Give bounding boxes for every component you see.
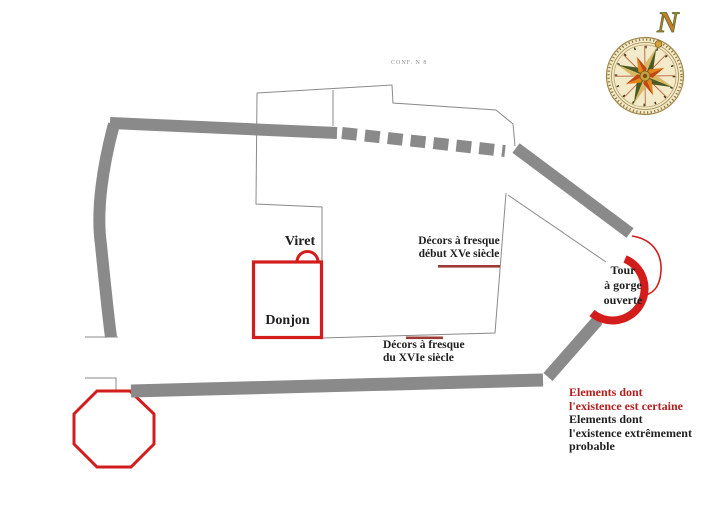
legend-probable-line1: Elements dont xyxy=(569,413,692,427)
fresco-xv-line1: Décors à fresque xyxy=(407,235,511,248)
plan-reference-note: CONF. N 8 xyxy=(391,60,427,66)
compass-north-knob xyxy=(655,41,662,48)
curtain-wall-dashed xyxy=(342,133,505,151)
curtain-wall-top xyxy=(110,123,337,133)
viret-label: Viret xyxy=(271,234,329,250)
open-gorge-tower-label: Tour à gorge ouverte xyxy=(594,263,652,308)
fresco-xvi-line2: du XVIe siècle xyxy=(383,352,483,365)
tower-label-line1: Tour xyxy=(594,263,652,278)
fresco-xv-line2: début XVe siècle xyxy=(407,248,511,261)
octagonal-tower xyxy=(74,391,154,467)
legend-certain-line1: Elements dont xyxy=(569,386,692,400)
curtain-wall-left xyxy=(99,124,114,337)
curtain-wall-south xyxy=(131,380,543,391)
fresco-xvi-label: Décors à fresque du XVIe siècle xyxy=(383,339,483,365)
compass-rose: N xyxy=(606,6,684,115)
legend: Elements dont l'existence est certaine E… xyxy=(569,386,692,454)
legend-probable-line2: l'existence extrêmement xyxy=(569,427,692,441)
tower-label-line2: à gorge xyxy=(594,278,652,293)
compass-hub-inner xyxy=(643,74,647,78)
fresco-marker-xv xyxy=(438,265,500,268)
donjon-label: Donjon xyxy=(254,313,321,329)
fresco-xvi-line1: Décors à fresque xyxy=(383,339,483,352)
legend-probable-line3: probable xyxy=(569,440,692,454)
legend-certain-line2: l'existence est certaine xyxy=(569,400,692,414)
tower-label-line3: ouverte xyxy=(594,293,652,308)
compass-north-letter: N xyxy=(656,6,680,39)
outline-west-gap-b xyxy=(85,378,116,390)
curtain-wall-northeast xyxy=(516,148,630,233)
curtain-wall-southeast xyxy=(548,320,598,377)
castle-plan: N CONF. N 8 Viret Donjon Décors à fresqu… xyxy=(0,0,707,508)
curtain-walls xyxy=(99,123,630,391)
fresco-xv-label: Décors à fresque début XVe siècle xyxy=(407,235,511,261)
